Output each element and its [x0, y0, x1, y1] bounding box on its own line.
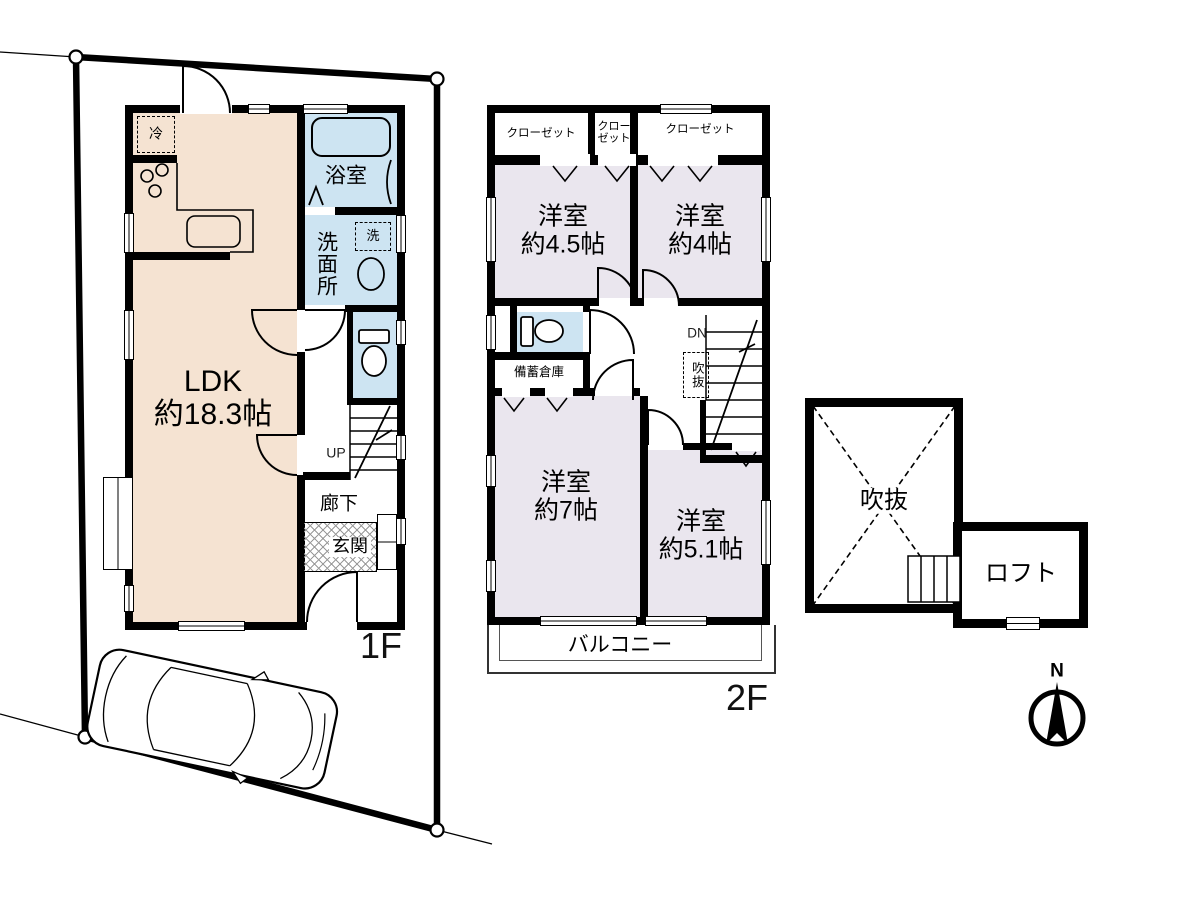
window	[396, 518, 406, 545]
closet-opening	[732, 442, 760, 451]
wall	[700, 400, 706, 455]
room-bathroom	[305, 113, 397, 207]
window	[248, 104, 270, 114]
room-d-size: 約5.1帖	[659, 536, 744, 564]
room-a-size: 約4.5帖	[521, 231, 606, 259]
wall	[347, 398, 397, 405]
wall	[345, 305, 397, 312]
room-c-label: 洋室 約7帖	[534, 470, 598, 525]
wall	[125, 105, 180, 113]
storage-opening	[502, 387, 530, 397]
storage-opening	[545, 387, 573, 397]
door-opening	[307, 621, 357, 631]
wall	[297, 352, 305, 435]
closet-mid-label: クローゼット	[594, 121, 634, 146]
wall	[487, 350, 495, 455]
wall	[125, 622, 178, 630]
wall	[232, 105, 248, 113]
laundry-label: 洗	[366, 229, 379, 243]
window	[396, 435, 406, 460]
window	[124, 310, 134, 360]
closet-opening	[648, 154, 718, 166]
wall	[683, 443, 732, 450]
window	[396, 320, 406, 345]
bay-window	[103, 477, 133, 570]
balcony-label: バルコニー	[568, 633, 673, 656]
closet-left-label: クローゼット	[507, 128, 576, 141]
room-b-label: 洋室 約4帖	[668, 204, 732, 259]
room-a-label: 洋室 約4.5帖	[521, 204, 606, 259]
shoe-cabinet	[377, 514, 397, 570]
stairs-down-label: DN	[687, 327, 707, 342]
window	[124, 213, 134, 253]
window	[396, 215, 406, 253]
wall	[495, 298, 598, 306]
window	[178, 621, 245, 631]
room-d-name: 洋室	[659, 509, 744, 537]
fridge-label: 冷	[149, 126, 163, 141]
ldk-label: LDK 約18.3帖	[154, 365, 272, 431]
wall	[707, 617, 770, 625]
void-label: 吹抜	[857, 488, 911, 514]
floor-plan-canvas: LDK 約18.3帖 浴室 洗面所 洗 冷 UP 廊下 玄関 1F クローゼット…	[0, 0, 1200, 900]
bathroom-label: 浴室	[325, 164, 367, 187]
washroom-label: 洗面所	[314, 231, 337, 297]
wall	[487, 487, 495, 560]
wall	[530, 388, 545, 396]
closet-opening	[540, 154, 590, 166]
wall	[397, 545, 405, 630]
wall	[335, 207, 397, 215]
kitchen-wall-stub	[133, 252, 230, 260]
window	[303, 104, 348, 114]
wall	[495, 155, 540, 165]
wall	[495, 352, 583, 360]
compass-icon	[1031, 682, 1083, 744]
wall	[245, 622, 307, 630]
wall	[397, 253, 405, 320]
storage-label: 備蓄倉庫	[514, 366, 564, 380]
room-b-size: 約4帖	[668, 231, 732, 259]
room-c-name: 洋室	[534, 470, 598, 498]
wall	[636, 298, 643, 306]
wall	[590, 155, 598, 165]
window	[761, 197, 771, 262]
wall	[679, 298, 770, 306]
room-b-name: 洋室	[668, 204, 732, 232]
wall	[487, 105, 495, 197]
door-opening	[180, 103, 232, 114]
ldk-name: LDK	[154, 365, 272, 398]
wall	[397, 460, 405, 518]
wall	[637, 617, 645, 625]
wall	[487, 262, 495, 315]
window	[1006, 617, 1040, 630]
wall	[303, 472, 350, 480]
stairs-up-label: UP	[326, 445, 345, 460]
room-toilet-2f	[517, 312, 583, 352]
entrance-label: 玄関	[329, 537, 371, 557]
wall	[640, 396, 648, 617]
stairs-2f	[706, 315, 762, 450]
window	[124, 585, 134, 612]
wall	[270, 105, 303, 113]
car-icon	[82, 638, 342, 800]
wall	[495, 388, 502, 396]
room-a-name: 洋室	[521, 204, 606, 232]
wall	[397, 113, 405, 215]
wall	[487, 617, 540, 625]
room-d-label: 洋室 約5.1帖	[659, 509, 744, 564]
void-shaft-label: 吹抜	[689, 362, 703, 389]
window	[660, 104, 712, 114]
window	[486, 315, 496, 350]
ldk-size: 約18.3帖	[154, 398, 272, 431]
wall	[633, 388, 640, 396]
room-toilet-1f	[353, 312, 397, 398]
wall	[297, 113, 305, 310]
floor2-label: 2F	[726, 678, 768, 718]
stairs-1f	[350, 405, 397, 480]
window	[486, 455, 496, 487]
wall	[718, 155, 762, 165]
window	[645, 616, 707, 626]
closet-opening	[598, 154, 636, 166]
window	[486, 560, 496, 592]
wall	[762, 105, 770, 197]
wall	[347, 312, 353, 405]
window	[486, 197, 496, 262]
compass-north-label: N	[1050, 662, 1064, 683]
wall	[573, 388, 595, 396]
wall	[487, 105, 660, 113]
wall	[583, 306, 590, 312]
closet-right-label: クローゼット	[666, 124, 735, 137]
hallway-label: 廊下	[320, 495, 358, 516]
wall	[348, 105, 405, 113]
wall	[762, 565, 770, 625]
window	[761, 500, 771, 565]
wall	[700, 455, 770, 463]
wall	[397, 345, 405, 435]
loft-label: ロフト	[985, 561, 1057, 587]
window	[540, 616, 637, 626]
room-c-size: 約7帖	[534, 497, 598, 525]
kitchen-wall-stub	[133, 155, 177, 163]
floor1-label: 1F	[360, 626, 402, 666]
